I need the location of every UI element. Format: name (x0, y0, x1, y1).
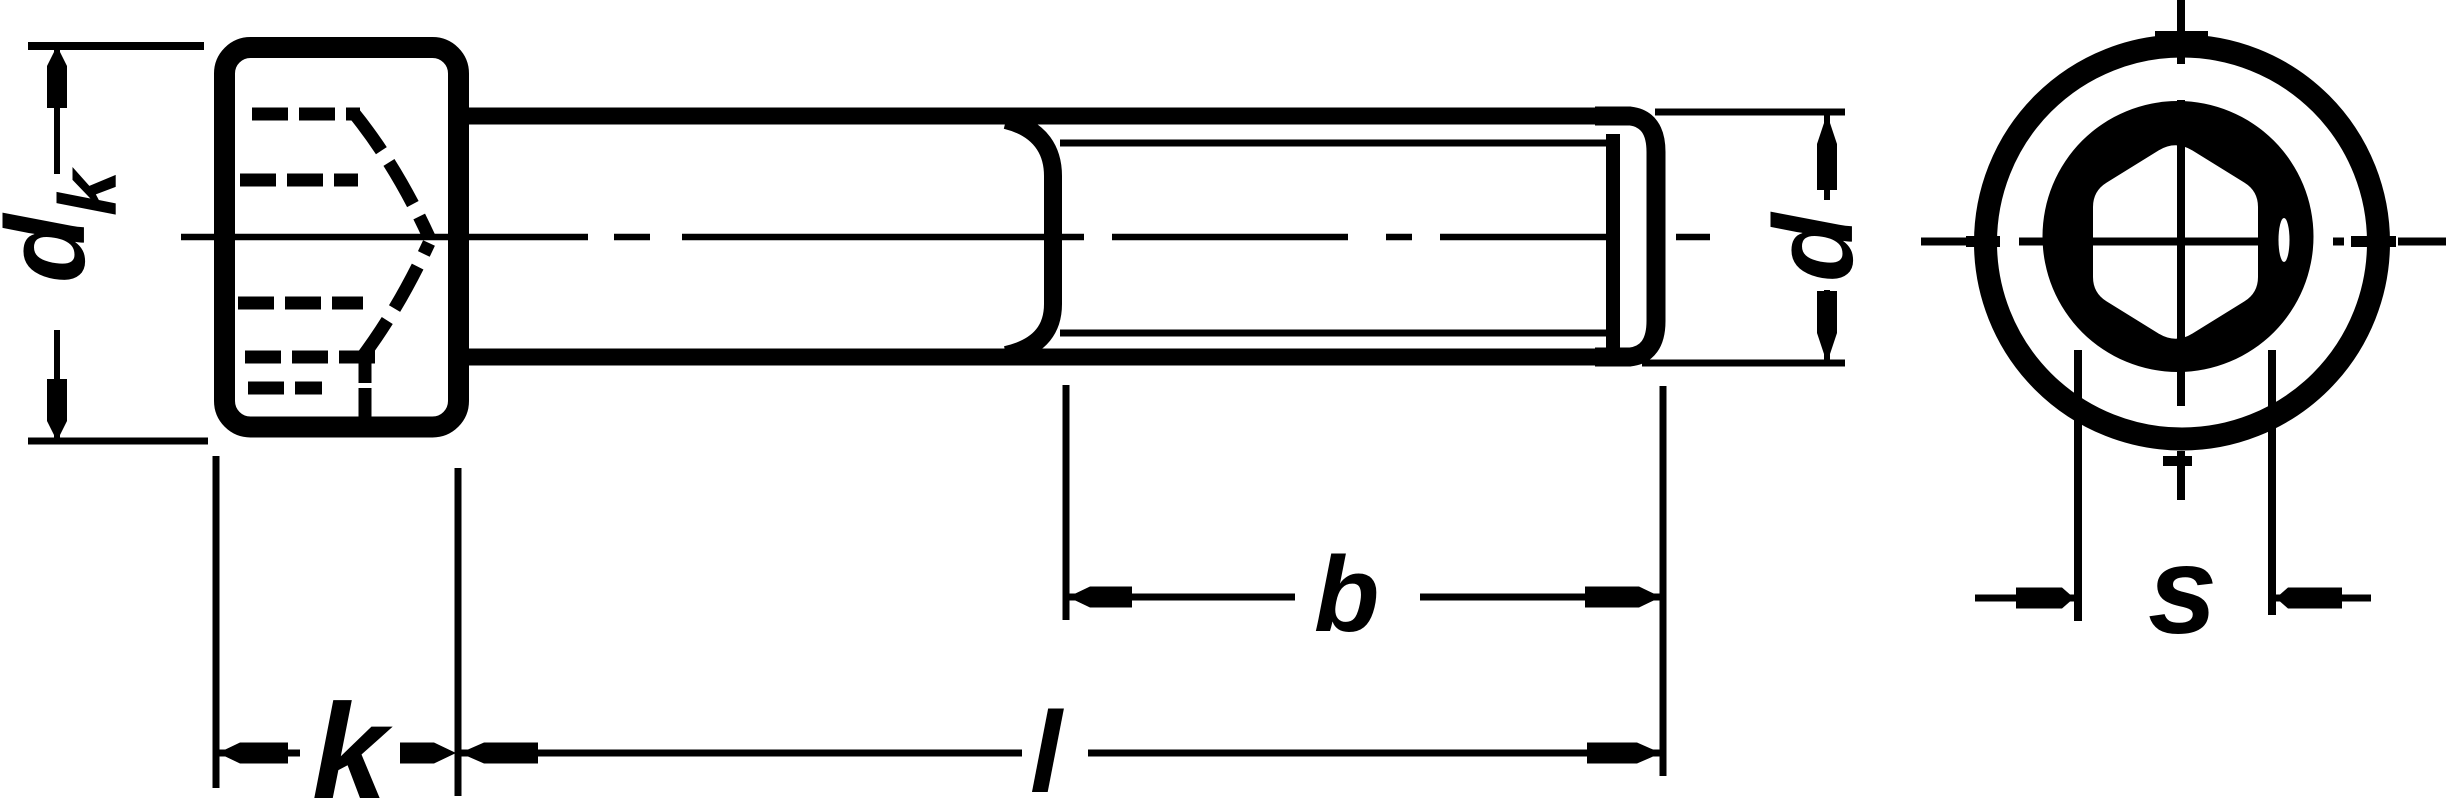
svg-text:k: k (43, 166, 134, 216)
svg-text:l: l (1030, 689, 1064, 800)
svg-text:s: s (2148, 522, 2217, 660)
svg-text:d: d (1751, 211, 1876, 282)
svg-text:b: b (1314, 534, 1379, 654)
svg-text:k: k (312, 676, 393, 800)
svg-text:d: d (0, 212, 108, 283)
